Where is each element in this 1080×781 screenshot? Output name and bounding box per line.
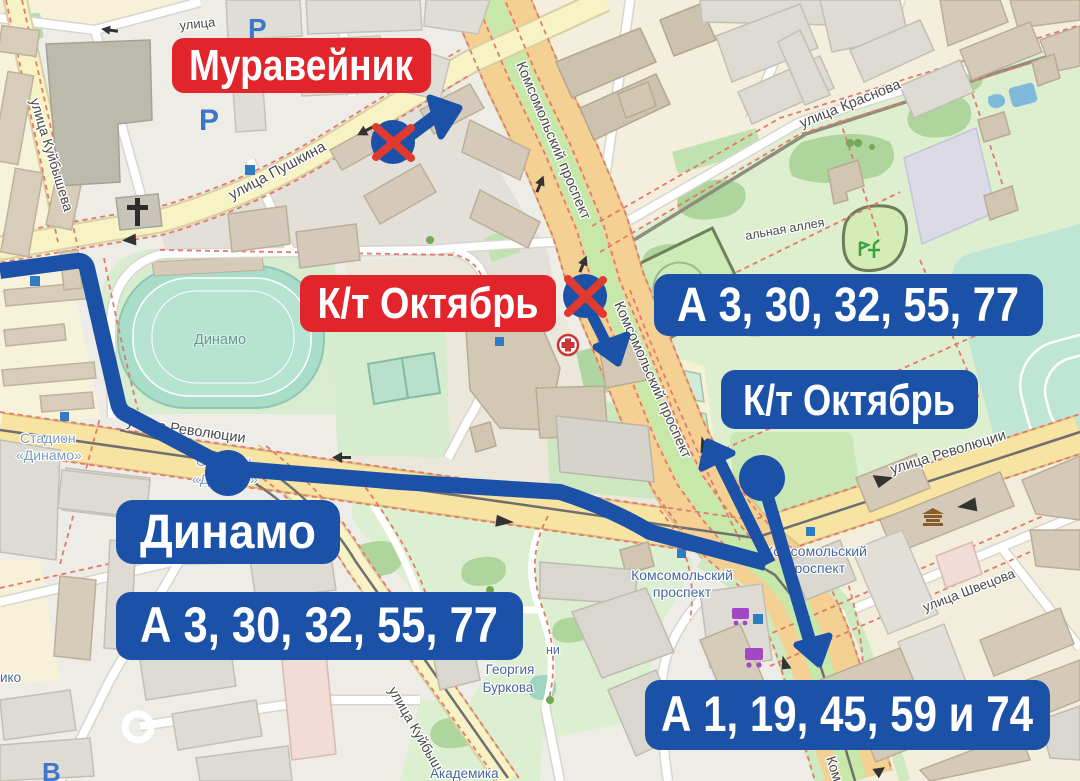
svg-text:Георгия: Георгия xyxy=(486,662,535,677)
svg-text:А 1, 19, 45, 59 и 74: А 1, 19, 45, 59 и 74 xyxy=(661,686,1033,742)
svg-text:ни: ни xyxy=(546,643,560,657)
svg-text:К/т Октябрь: К/т Октябрь xyxy=(318,279,539,328)
svg-text:ико: ико xyxy=(0,670,21,685)
svg-text:Динамо: Динамо xyxy=(140,506,316,559)
svg-text:К/т Октябрь: К/т Октябрь xyxy=(743,376,955,425)
svg-text:P: P xyxy=(199,104,219,137)
svg-text:проспект: проспект xyxy=(653,584,712,600)
svg-text:А 3, 30, 32, 55, 77: А 3, 30, 32, 55, 77 xyxy=(677,279,1019,332)
svg-text:Муравейник: Муравейник xyxy=(189,41,414,90)
svg-text:А 3, 30, 32, 55, 77: А 3, 30, 32, 55, 77 xyxy=(140,597,498,653)
svg-text:Стадион: Стадион xyxy=(20,430,76,446)
svg-text:Академика: Академика xyxy=(430,766,499,781)
svg-text:«Динамо»: «Динамо» xyxy=(16,447,82,463)
svg-text:Комсомольский: Комсомольский xyxy=(631,567,733,583)
svg-text:Динамо: Динамо xyxy=(194,332,246,348)
svg-text:Буркова: Буркова xyxy=(483,680,534,695)
svg-text:В: В xyxy=(42,757,61,781)
